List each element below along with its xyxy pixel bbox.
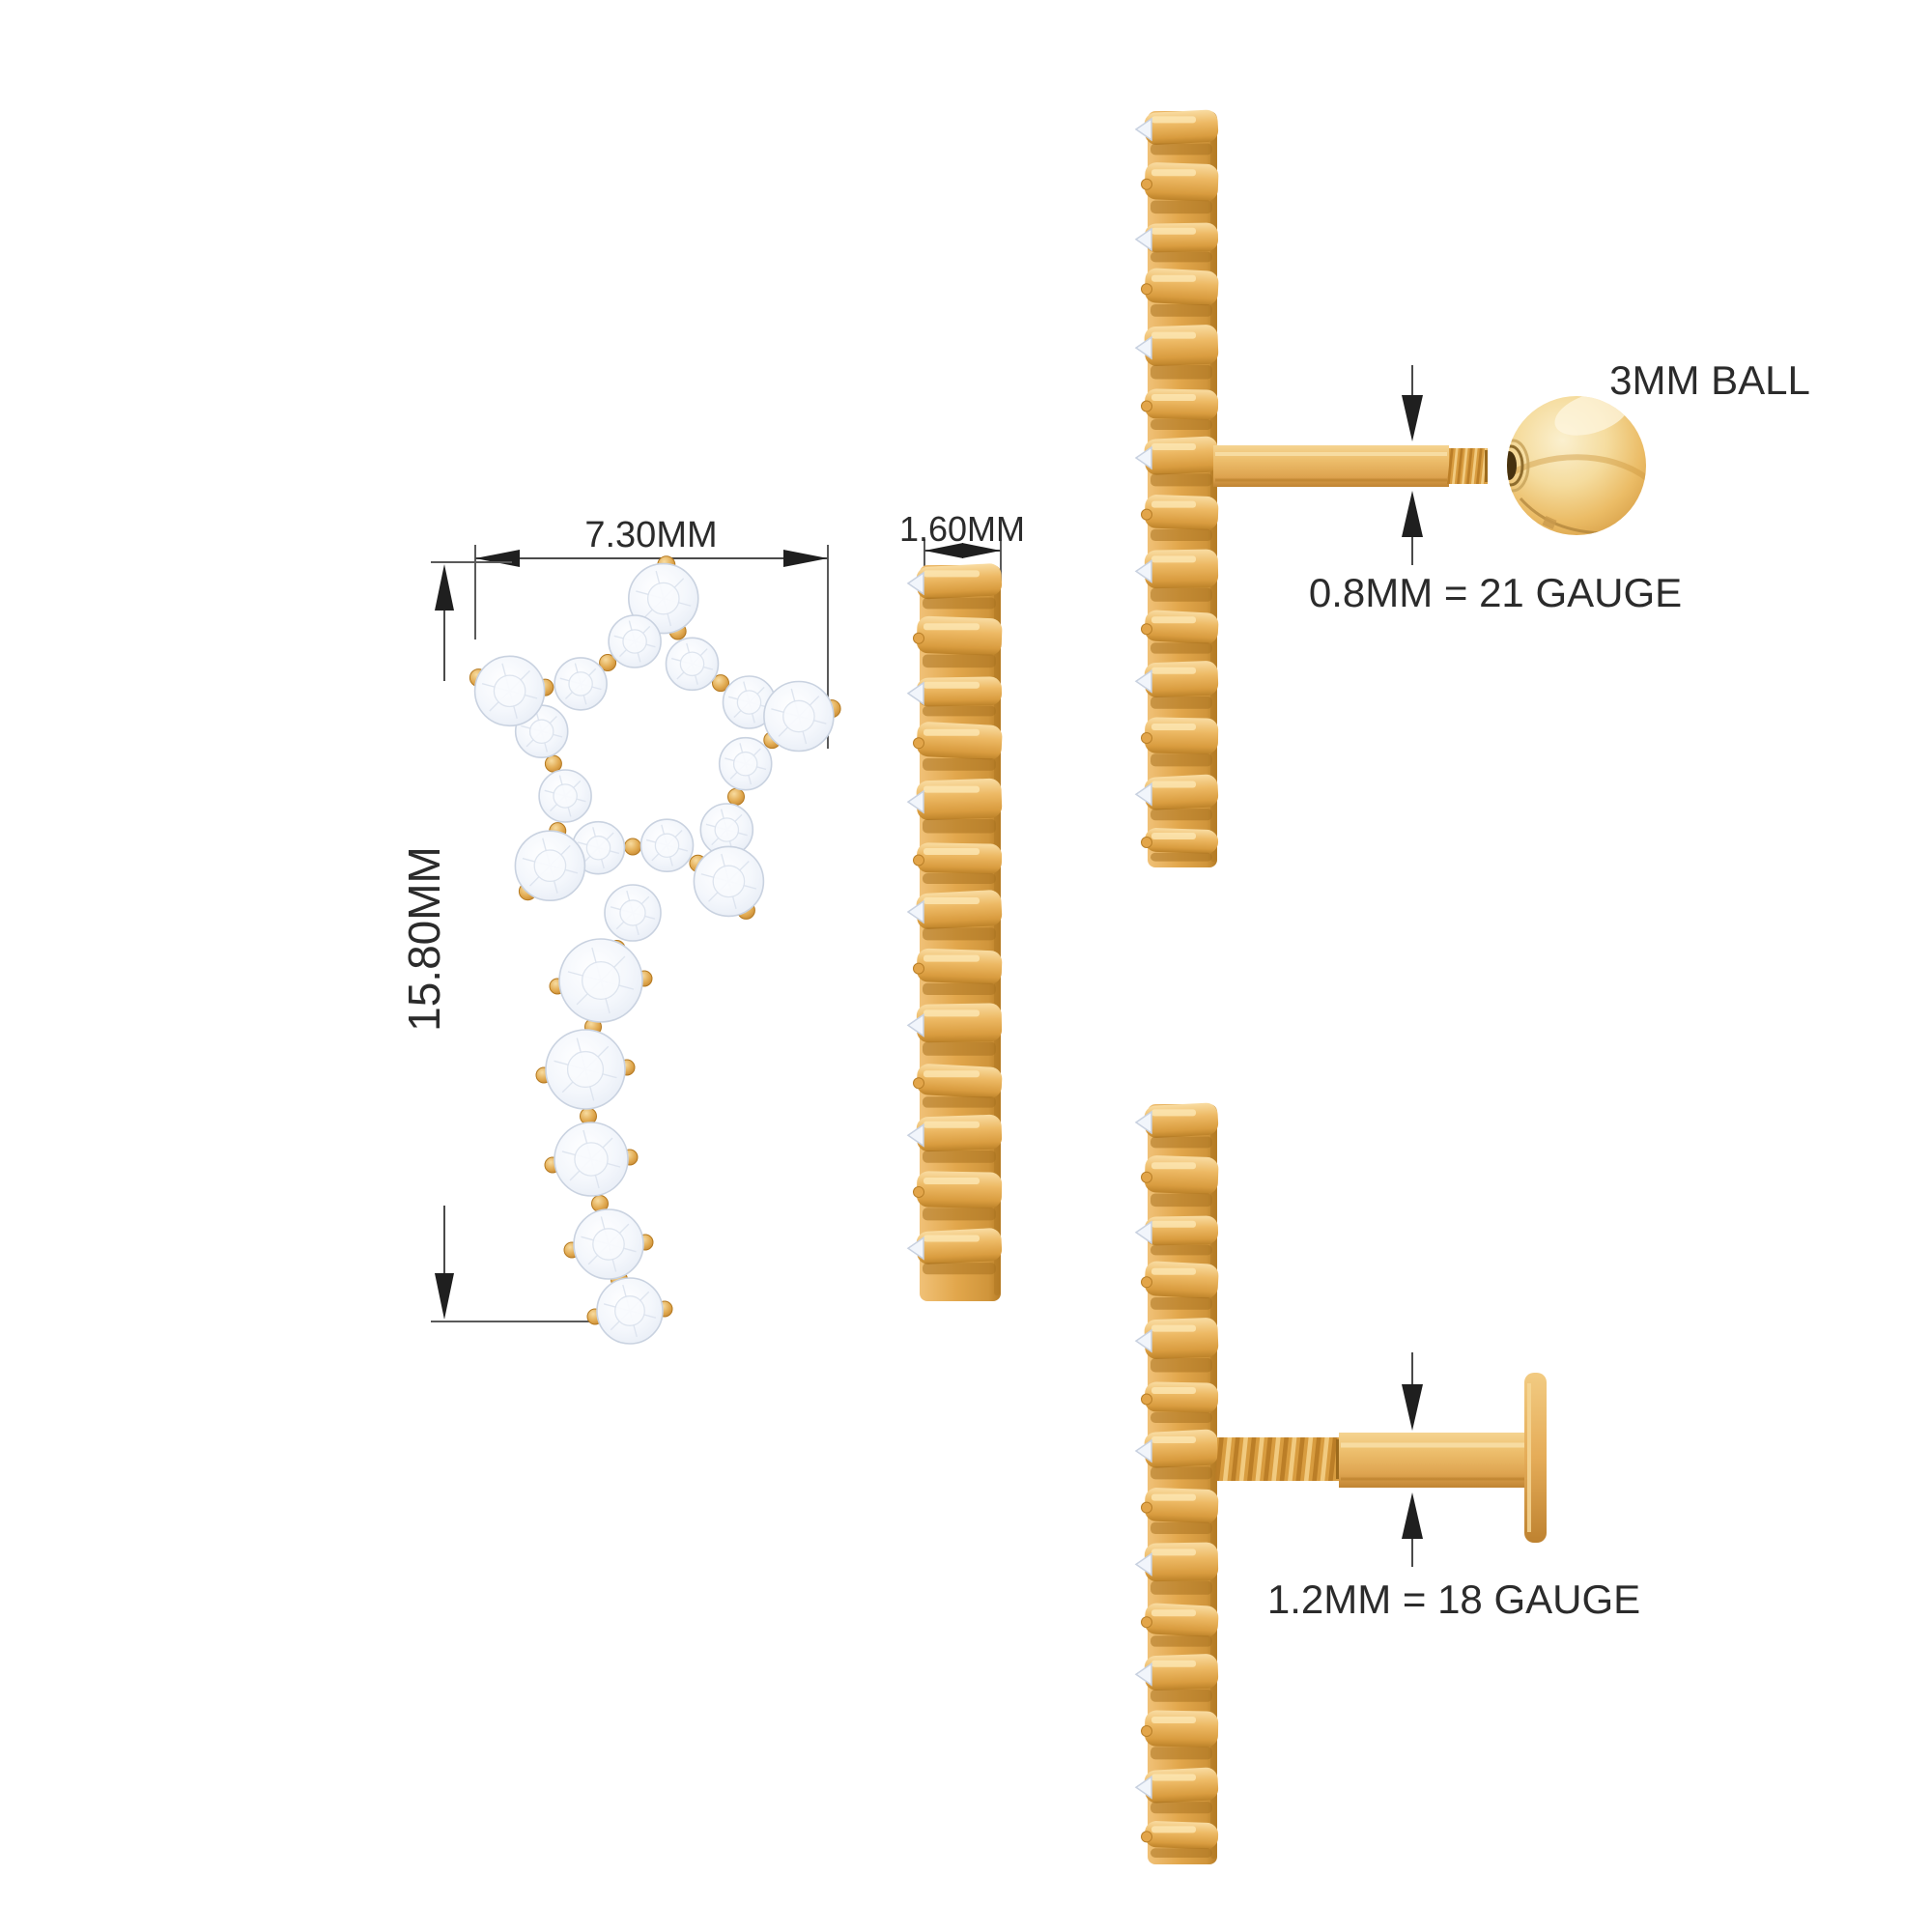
setting-gap-shadow: [923, 758, 996, 771]
diamond-stone: [667, 638, 719, 690]
thread-end: [1485, 450, 1488, 482]
gold-setting-ridge: [1144, 1318, 1218, 1360]
ball-post-gauge-label: 0.8MM = 21 GAUGE: [1309, 570, 1682, 615]
setting-gap-shadow: [1151, 1193, 1212, 1207]
setting-gap-shadow: [1151, 529, 1212, 541]
diamond-chip: [908, 573, 923, 594]
setting-highlight: [1151, 1494, 1196, 1501]
setting-gap-shadow: [1151, 1522, 1212, 1534]
setting-highlight: [1151, 394, 1196, 401]
diamond-chip: [908, 1237, 923, 1259]
gold-setting-ridge: [1144, 1155, 1218, 1195]
setting-gap-shadow: [923, 597, 996, 609]
gold-prong: [1142, 179, 1152, 189]
gold-setting-ridge: [1144, 661, 1218, 698]
labret-stud-side-view: 1.2MM = 18 GAUGE: [1136, 1102, 1640, 1864]
gold-setting-ridge: [1145, 717, 1219, 754]
setting-gap-shadow: [1151, 200, 1212, 213]
setting-gap-shadow: [923, 1263, 996, 1274]
gold-prong: [914, 738, 924, 749]
arrowhead-up: [1402, 491, 1423, 537]
stone-table: [582, 962, 620, 1000]
setting-gap-shadow: [1151, 473, 1212, 486]
diamond-chip: [1136, 447, 1151, 469]
gold-setting-ridge: [1144, 1488, 1218, 1523]
diamond-stone: [694, 846, 763, 916]
setting-highlight: [923, 848, 980, 855]
gold-setting-ridge: [916, 563, 1003, 600]
setting-highlight: [923, 1070, 980, 1077]
setting-highlight: [1151, 1162, 1196, 1169]
setting-highlight: [1151, 1325, 1196, 1332]
setting-highlight: [1151, 332, 1196, 339]
setting-highlight: [1151, 833, 1196, 839]
setting-gap-shadow: [1151, 1802, 1212, 1813]
diamond-chip: [1136, 1553, 1151, 1575]
gold-prong: [1142, 284, 1152, 295]
diamond-stone: [605, 885, 661, 941]
setting-gap-shadow: [1151, 1690, 1212, 1702]
diamond-chip: [908, 683, 923, 704]
gold-prong: [1142, 838, 1152, 848]
gold-setting-ridge: [1145, 1381, 1219, 1412]
gold-setting-ridge: [1144, 1429, 1219, 1468]
setting-gap-shadow: [1151, 1297, 1212, 1310]
stud-threads: [1447, 448, 1488, 484]
setting-gap-shadow: [923, 1042, 996, 1056]
setting-gap-shadow: [923, 1151, 996, 1163]
stone-table: [534, 850, 565, 881]
setting-highlight: [923, 729, 980, 736]
diamond-stone: [515, 831, 584, 900]
gold-prong: [1142, 1502, 1152, 1513]
gold-setting-ridge: [917, 1171, 1003, 1208]
setting-highlight: [923, 1122, 980, 1128]
stone-table: [655, 834, 678, 857]
gold-setting-ridge: [1144, 162, 1218, 202]
setting-gap-shadow: [1151, 809, 1212, 820]
stone-table: [623, 630, 646, 653]
gold-setting-ridge: [916, 615, 1002, 655]
thread-end: [1336, 1439, 1339, 1479]
setting-highlight: [1151, 668, 1196, 674]
diamond-stone: [539, 770, 591, 822]
setting-highlight: [923, 955, 980, 962]
gold-setting-ridge: [916, 890, 1003, 930]
gold-prong: [1142, 1394, 1152, 1405]
setting-gap-shadow: [1151, 696, 1212, 709]
gold-prong: [1142, 1617, 1152, 1628]
diamond-chip: [1136, 1776, 1151, 1798]
stone-table: [586, 837, 610, 860]
diamond-chip: [1136, 1112, 1151, 1133]
diamond-stone: [559, 939, 642, 1022]
setting-gap-shadow: [1151, 1581, 1212, 1595]
gold-setting-ridge: [917, 676, 1003, 706]
gold-setting-ridge: [1145, 1542, 1219, 1581]
diamond-chip: [908, 791, 923, 812]
gold-setting-ridge: [1144, 1261, 1219, 1299]
gold-setting-ridge: [916, 722, 1003, 761]
stone-table: [713, 866, 744, 896]
setting-highlight: [1151, 1826, 1196, 1833]
stone-table: [783, 700, 814, 731]
setting-gap-shadow: [1151, 1635, 1212, 1646]
setting-highlight: [923, 623, 980, 630]
setting-highlight: [1151, 443, 1196, 450]
setting-highlight: [1151, 1775, 1196, 1781]
labret-post-gauge-label: 1.2MM = 18 GAUGE: [1267, 1577, 1640, 1622]
diamond-chip: [1136, 1222, 1151, 1243]
setting-gap-shadow: [1151, 143, 1212, 155]
diamond-chip: [1136, 337, 1151, 358]
setting-highlight: [923, 1009, 980, 1016]
profile-earring-strip: [908, 563, 1003, 1301]
gold-setting-ridge: [916, 1064, 1003, 1099]
setting-highlight: [1151, 1717, 1196, 1723]
setting-highlight: [1151, 1548, 1196, 1555]
diamond-stone: [574, 1209, 643, 1279]
stone-table: [737, 691, 760, 714]
arrowhead-down: [1402, 395, 1423, 441]
gold-setting-ridge: [917, 842, 1003, 874]
setting-gap-shadow: [1151, 853, 1212, 862]
gold-setting-ridge: [1144, 1767, 1219, 1804]
diamond-chip: [1136, 783, 1151, 805]
gold-setting-ridge: [916, 948, 1002, 984]
setting-gap-shadow: [1151, 1412, 1212, 1423]
diamond-stone: [554, 658, 607, 710]
stone-table: [620, 900, 645, 925]
front-height-label: 15.80MM: [399, 846, 449, 1032]
diamond-chip: [908, 1014, 923, 1036]
gold-prong: [1142, 624, 1152, 635]
setting-highlight: [1151, 1609, 1196, 1616]
setting-gap-shadow: [1151, 252, 1212, 263]
gold-setting-ridge: [916, 1115, 1002, 1152]
front-earring: [469, 556, 840, 1344]
setting-highlight: [1151, 116, 1196, 123]
diamond-stone: [554, 1122, 628, 1196]
setting-gap-shadow: [923, 1207, 996, 1220]
gold-setting-ridge: [1144, 610, 1219, 644]
diamond-stone: [720, 738, 772, 790]
diamond-chip: [1136, 119, 1151, 140]
setting-highlight: [1151, 1268, 1196, 1275]
gold-prong: [1142, 1172, 1152, 1182]
setting-gap-shadow: [923, 983, 996, 995]
setting-highlight: [1151, 1109, 1196, 1116]
setting-gap-shadow: [923, 706, 996, 717]
setting-gap-shadow: [1151, 1466, 1212, 1479]
front-view: 7.30MM 15.80MM: [399, 515, 840, 1344]
gold-setting-ridge: [1144, 1102, 1219, 1138]
arrowhead-down: [1402, 1384, 1423, 1431]
diamond-chip: [908, 901, 923, 923]
arrowhead-up: [1402, 1492, 1423, 1539]
setting-highlight: [1151, 501, 1196, 508]
stone-table: [648, 582, 679, 613]
gold-setting-ridge: [1144, 1654, 1218, 1691]
setting-gap-shadow: [1151, 1747, 1212, 1759]
setting-highlight: [923, 570, 980, 577]
stone-table: [615, 1296, 645, 1326]
gold-setting-ridge: [1144, 774, 1219, 810]
labret-stud-earring-strip: [1136, 1102, 1219, 1864]
gold-setting-ridge: [916, 779, 1002, 821]
stone-table: [715, 818, 738, 841]
gold-setting-ridge: [1144, 109, 1219, 145]
profile-side-view: 1.60MM: [899, 509, 1025, 1301]
setting-gap-shadow: [923, 654, 996, 668]
diamond-stone: [641, 819, 694, 871]
setting-highlight: [923, 786, 980, 793]
arrowhead-right: [783, 550, 828, 567]
stud-threads: [1214, 1437, 1339, 1481]
setting-gap-shadow: [1151, 642, 1212, 653]
gold-setting-ridge: [1144, 1603, 1219, 1637]
setting-gap-shadow: [923, 1096, 996, 1107]
gold-prong: [1142, 1726, 1152, 1737]
arrowhead-down: [435, 1273, 454, 1320]
setting-highlight: [923, 1236, 980, 1242]
ball-stud-side-view: 0.8MM = 21 GAUGE 3MM BALL: [1136, 109, 1810, 867]
setting-highlight: [923, 1178, 980, 1184]
setting-highlight: [1151, 1661, 1196, 1667]
setting-highlight: [1151, 169, 1196, 176]
stone-table: [575, 1143, 608, 1176]
gold-prong: [914, 1078, 924, 1089]
setting-highlight: [1151, 1387, 1196, 1394]
setting-highlight: [1151, 1221, 1196, 1228]
diamond-chip: [908, 1124, 923, 1146]
setting-highlight: [1151, 228, 1196, 235]
setting-highlight: [1151, 724, 1196, 730]
gold-prong: [1142, 509, 1152, 520]
diamond-stone: [546, 1030, 625, 1109]
ball-size-label: 3MM BALL: [1609, 357, 1810, 403]
setting-gap-shadow: [1151, 1245, 1212, 1256]
gold-setting-ridge: [1144, 325, 1218, 367]
front-width-label: 7.30MM: [584, 515, 717, 555]
stone-table: [734, 753, 757, 776]
diamond-chip: [1136, 560, 1151, 582]
diamond-stone: [609, 615, 661, 668]
gold-prong: [914, 855, 924, 866]
diamond-chip: [1136, 229, 1151, 250]
setting-highlight: [1151, 275, 1196, 282]
setting-highlight: [1151, 555, 1196, 562]
gold-setting-ridge: [916, 1228, 1003, 1265]
setting-gap-shadow: [1151, 1358, 1212, 1373]
setting-gap-shadow: [923, 873, 996, 884]
gold-prong: [914, 963, 924, 974]
gold-prong: [914, 1187, 924, 1198]
setting-gap-shadow: [1151, 588, 1212, 602]
gold-prong: [1142, 1832, 1152, 1842]
gold-setting-ridge: [1145, 549, 1219, 588]
setting-gap-shadow: [1151, 365, 1212, 380]
diamond-stone: [764, 682, 834, 752]
diamond-stone: [597, 1278, 663, 1344]
gold-setting-ridge: [1144, 268, 1219, 306]
gold-prong: [1142, 1277, 1152, 1288]
gold-setting-ridge: [1145, 828, 1219, 854]
setting-gap-shadow: [1151, 1848, 1212, 1858]
gold-prong: [914, 633, 924, 643]
gold-prong: [1142, 401, 1152, 412]
setting-gap-shadow: [1151, 304, 1212, 317]
setting-gap-shadow: [923, 819, 996, 834]
stone-table: [494, 675, 525, 706]
gold-setting-ridge: [1145, 1710, 1219, 1747]
stone-table: [568, 1052, 604, 1088]
gold-setting-ridge: [1145, 1215, 1219, 1245]
gold-setting-ridge: [1144, 495, 1218, 530]
diamond-stone: [475, 656, 545, 725]
setting-highlight: [1151, 1436, 1196, 1443]
gold-setting-ridge: [917, 1003, 1003, 1042]
setting-gap-shadow: [1151, 419, 1212, 430]
diamond-chip: [1136, 1330, 1151, 1351]
profile-depth-label: 1.60MM: [899, 509, 1025, 549]
diagram-svg: 7.30MM 15.80MM 1.60MM: [0, 0, 1932, 1932]
gold-setting-ridge: [1145, 388, 1219, 419]
ball-end: [1497, 384, 1648, 535]
diamond-chip: [1136, 1440, 1151, 1462]
setting-highlight: [1151, 781, 1196, 788]
gold-prong: [545, 755, 561, 772]
setting-gap-shadow: [1151, 753, 1212, 766]
arrowhead-left: [475, 550, 520, 567]
setting-gap-shadow: [1151, 1136, 1212, 1148]
setting-highlight: [1151, 616, 1196, 623]
stone-table: [530, 720, 554, 743]
gold-prong: [728, 788, 745, 805]
product-dimension-diagram: 7.30MM 15.80MM 1.60MM: [0, 0, 1932, 1932]
setting-highlight: [923, 897, 980, 904]
gold-prong: [1142, 733, 1152, 744]
stone-table: [569, 672, 592, 696]
ball-stud-earring-strip: [1136, 109, 1219, 867]
stone-table: [680, 652, 703, 675]
gold-setting-ridge: [1144, 436, 1219, 475]
gold-prong: [625, 838, 641, 855]
stone-table: [593, 1229, 624, 1260]
setting-gap-shadow: [923, 927, 996, 940]
arrowhead-up: [435, 564, 454, 611]
gold-setting-ridge: [1145, 222, 1219, 252]
ball-socket-hole: [1501, 451, 1517, 480]
setting-highlight: [923, 682, 980, 689]
stone-table: [554, 784, 577, 808]
diamond-chip: [1136, 670, 1151, 692]
gold-setting-ridge: [1145, 1821, 1219, 1850]
diamond-chip: [1136, 1663, 1151, 1685]
